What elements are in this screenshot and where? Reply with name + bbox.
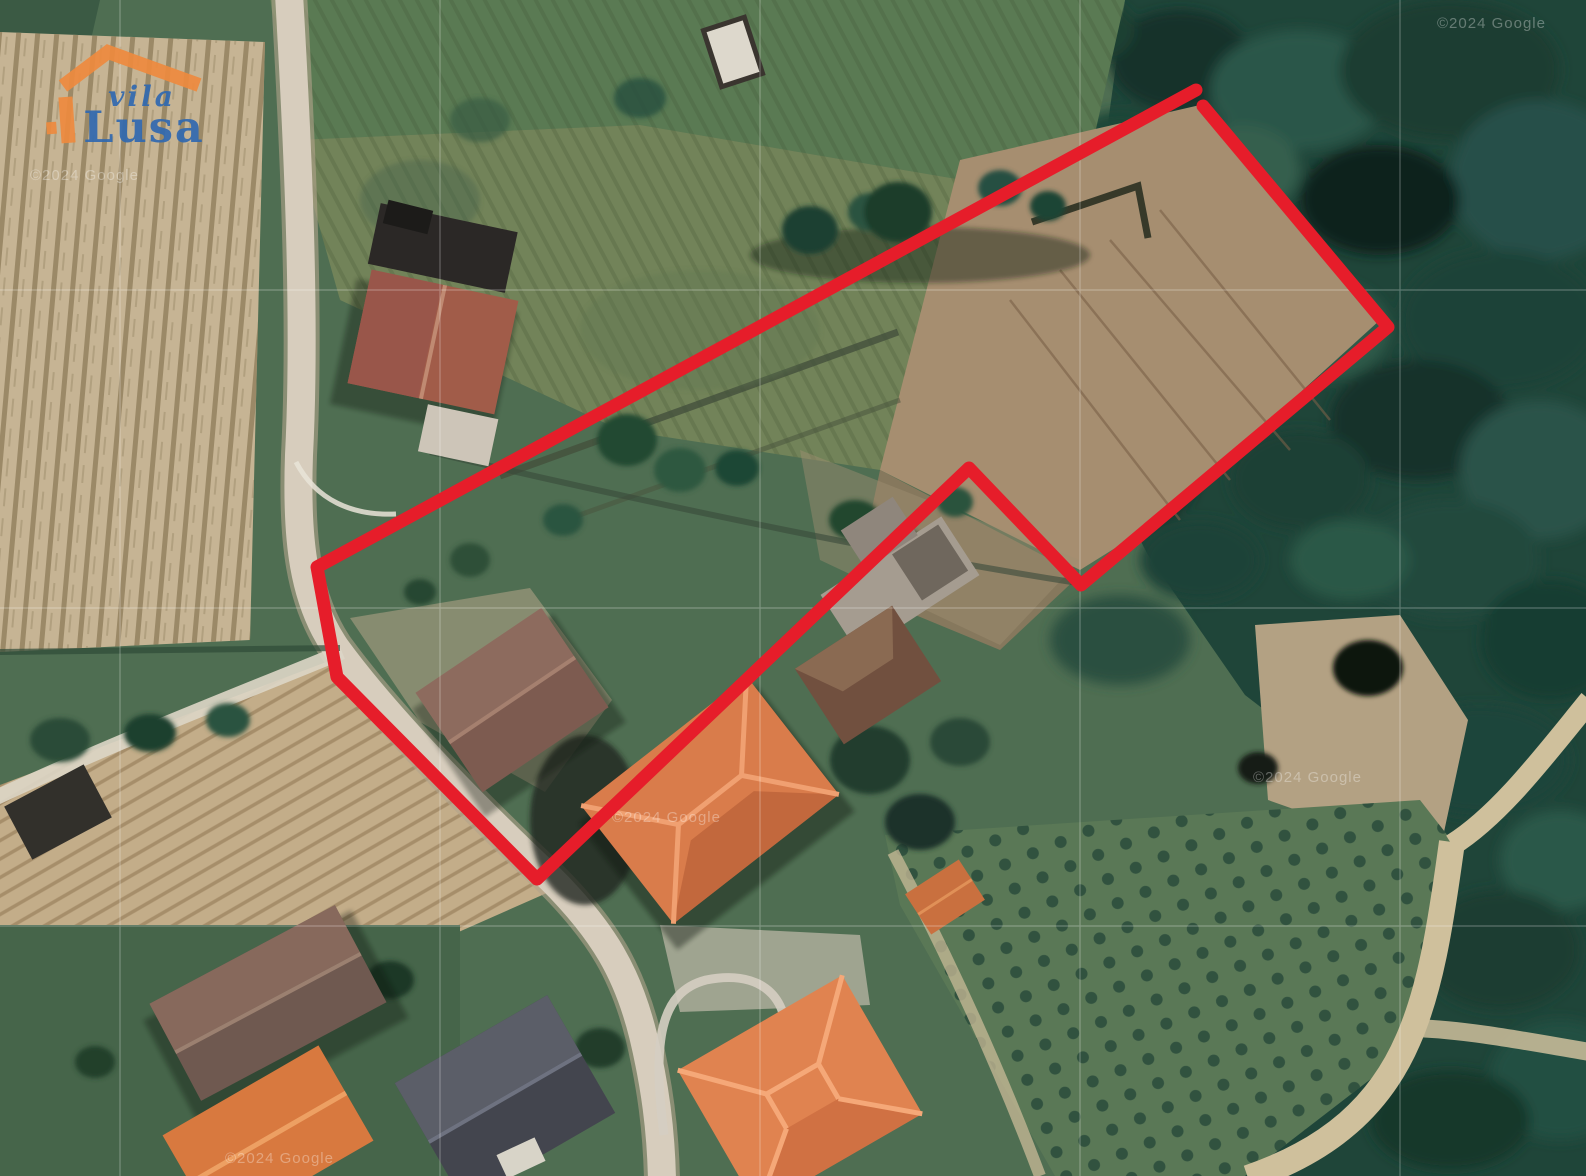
- watermark-text: ©2024 Google: [30, 167, 139, 184]
- watermark-text: ©2024 Google: [1437, 15, 1546, 32]
- listing-aerial-photo: ©2024 Google ©2024 Google ©2024 Google ©…: [0, 0, 1586, 1176]
- satellite-map: ©2024 Google ©2024 Google ©2024 Google ©…: [0, 0, 1586, 1176]
- logo-text-lusa: Lusa: [83, 103, 205, 153]
- watermark-text: ©2024 Google: [1253, 769, 1362, 786]
- watermark-text: ©2024 Google: [225, 1150, 334, 1167]
- watermark-text: ©2024 Google: [612, 809, 721, 826]
